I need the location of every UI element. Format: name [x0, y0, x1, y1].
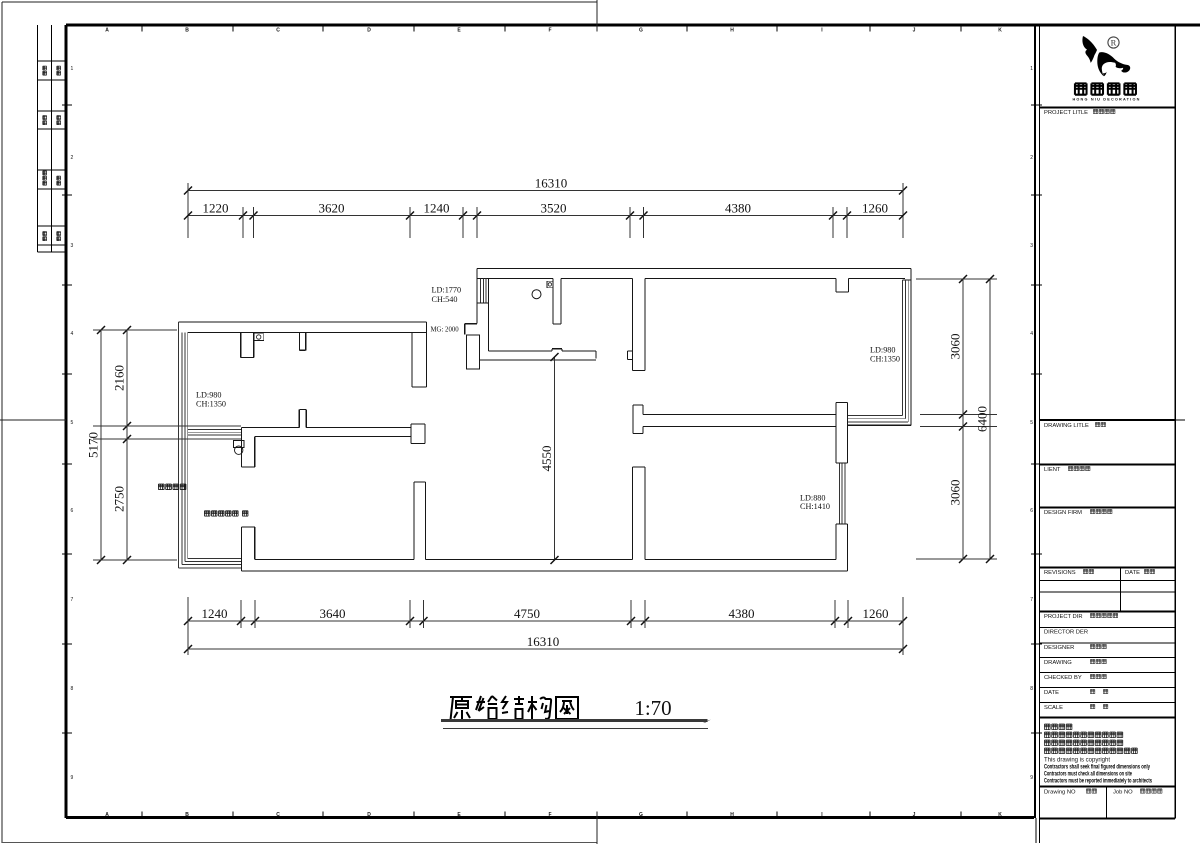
- svg-text:LD:980: LD:980: [196, 391, 221, 400]
- svg-text:3: 3: [1030, 243, 1033, 249]
- svg-text:B: B: [185, 812, 189, 818]
- svg-text:J: J: [913, 28, 916, 34]
- svg-text:A: A: [105, 812, 109, 818]
- svg-text:PROJECT DIR: PROJECT DIR: [1044, 614, 1083, 620]
- svg-text:Job NO: Job NO: [1113, 790, 1133, 796]
- svg-text:4: 4: [1030, 331, 1033, 337]
- svg-text:REVISIONS: REVISIONS: [1044, 570, 1076, 576]
- svg-text:K: K: [998, 28, 1002, 34]
- svg-text:D: D: [367, 812, 371, 818]
- svg-text:2750: 2750: [112, 486, 127, 512]
- svg-text:2: 2: [71, 155, 74, 161]
- svg-text:Contractors must be reported i: Contractors must be reported immediately…: [1044, 778, 1152, 785]
- svg-text:CH:1350: CH:1350: [196, 400, 226, 409]
- svg-text:C: C: [276, 28, 280, 34]
- svg-text:2160: 2160: [112, 365, 127, 391]
- svg-text:Drawing NO: Drawing NO: [1044, 790, 1076, 796]
- svg-text:DATE: DATE: [1044, 690, 1059, 696]
- svg-text:1: 1: [71, 66, 74, 72]
- svg-text:DIRECTOR DER: DIRECTOR DER: [1044, 630, 1088, 636]
- svg-text:2: 2: [1030, 155, 1033, 161]
- svg-text:3: 3: [71, 243, 74, 249]
- svg-text:7: 7: [71, 597, 74, 603]
- svg-text:3060: 3060: [948, 480, 963, 506]
- svg-text:LD:1770: LD:1770: [432, 286, 462, 295]
- svg-text:C: C: [276, 812, 280, 818]
- svg-text:7: 7: [1030, 597, 1033, 603]
- svg-text:4380: 4380: [729, 606, 755, 621]
- svg-text:H: H: [730, 812, 734, 818]
- svg-text:DESIGN FIRM: DESIGN FIRM: [1044, 510, 1082, 516]
- svg-text:CHECKED BY: CHECKED BY: [1044, 675, 1082, 681]
- svg-text:4750: 4750: [514, 606, 540, 621]
- svg-text:PROJECT LITLE: PROJECT LITLE: [1044, 110, 1088, 116]
- svg-text:K: K: [998, 812, 1002, 818]
- svg-text:HONG NIU DECORATION: HONG NIU DECORATION: [1072, 98, 1140, 102]
- svg-text:J: J: [913, 812, 916, 818]
- svg-text:8: 8: [1030, 686, 1033, 692]
- svg-text:5: 5: [1030, 420, 1033, 426]
- svg-text:SCALE: SCALE: [1044, 705, 1063, 711]
- svg-text:LIENT: LIENT: [1044, 467, 1061, 473]
- svg-text:DATE: DATE: [1125, 570, 1140, 576]
- svg-text:3620: 3620: [319, 200, 345, 215]
- svg-text:1:70: 1:70: [634, 696, 671, 720]
- svg-text:8: 8: [71, 686, 74, 692]
- svg-text:Contractors must check all dim: Contractors must check all dimensions on…: [1044, 771, 1132, 778]
- svg-text:6400: 6400: [975, 406, 990, 432]
- svg-text:CH:1350: CH:1350: [870, 355, 900, 364]
- svg-text:MG: 2000: MG: 2000: [431, 327, 460, 334]
- svg-text:9: 9: [71, 775, 74, 781]
- svg-text:F: F: [548, 28, 551, 34]
- svg-text:DRAWING LITLE: DRAWING LITLE: [1044, 423, 1089, 429]
- svg-text:D: D: [367, 28, 371, 34]
- svg-text:9: 9: [1030, 775, 1033, 781]
- svg-text:5170: 5170: [86, 432, 101, 458]
- svg-text:6: 6: [71, 508, 74, 514]
- svg-text:R: R: [1111, 38, 1117, 48]
- svg-text:B: B: [185, 28, 189, 34]
- svg-text:3520: 3520: [541, 200, 567, 215]
- svg-text:1260: 1260: [863, 606, 889, 621]
- svg-text:3060: 3060: [948, 334, 963, 360]
- svg-text:6: 6: [1030, 508, 1033, 514]
- svg-text:3640: 3640: [320, 606, 346, 621]
- svg-text:LD:980: LD:980: [870, 346, 895, 355]
- svg-text:5: 5: [71, 420, 74, 426]
- svg-text:CH:1410: CH:1410: [800, 502, 830, 511]
- svg-text:16310: 16310: [527, 634, 560, 649]
- svg-text:DRAWING: DRAWING: [1044, 660, 1072, 666]
- svg-text:4380: 4380: [725, 200, 751, 215]
- svg-text:4550: 4550: [539, 446, 554, 472]
- svg-text:1240: 1240: [424, 200, 450, 215]
- svg-text:H: H: [730, 28, 734, 34]
- svg-text:16310: 16310: [535, 175, 568, 190]
- svg-text:G: G: [639, 28, 643, 34]
- svg-text:1: 1: [1030, 66, 1033, 72]
- svg-text:1220: 1220: [203, 200, 229, 215]
- svg-text:DESIGNER: DESIGNER: [1044, 645, 1074, 651]
- svg-text:4: 4: [71, 331, 74, 337]
- svg-text:CH:540: CH:540: [432, 295, 458, 304]
- svg-text:F: F: [548, 812, 551, 818]
- svg-text:Contractors shall seek final f: Contractors shall seek final figured dim…: [1044, 764, 1150, 771]
- svg-text:1260: 1260: [862, 200, 888, 215]
- svg-text:G: G: [639, 812, 643, 818]
- svg-text:1240: 1240: [202, 606, 228, 621]
- svg-text:A: A: [105, 28, 109, 34]
